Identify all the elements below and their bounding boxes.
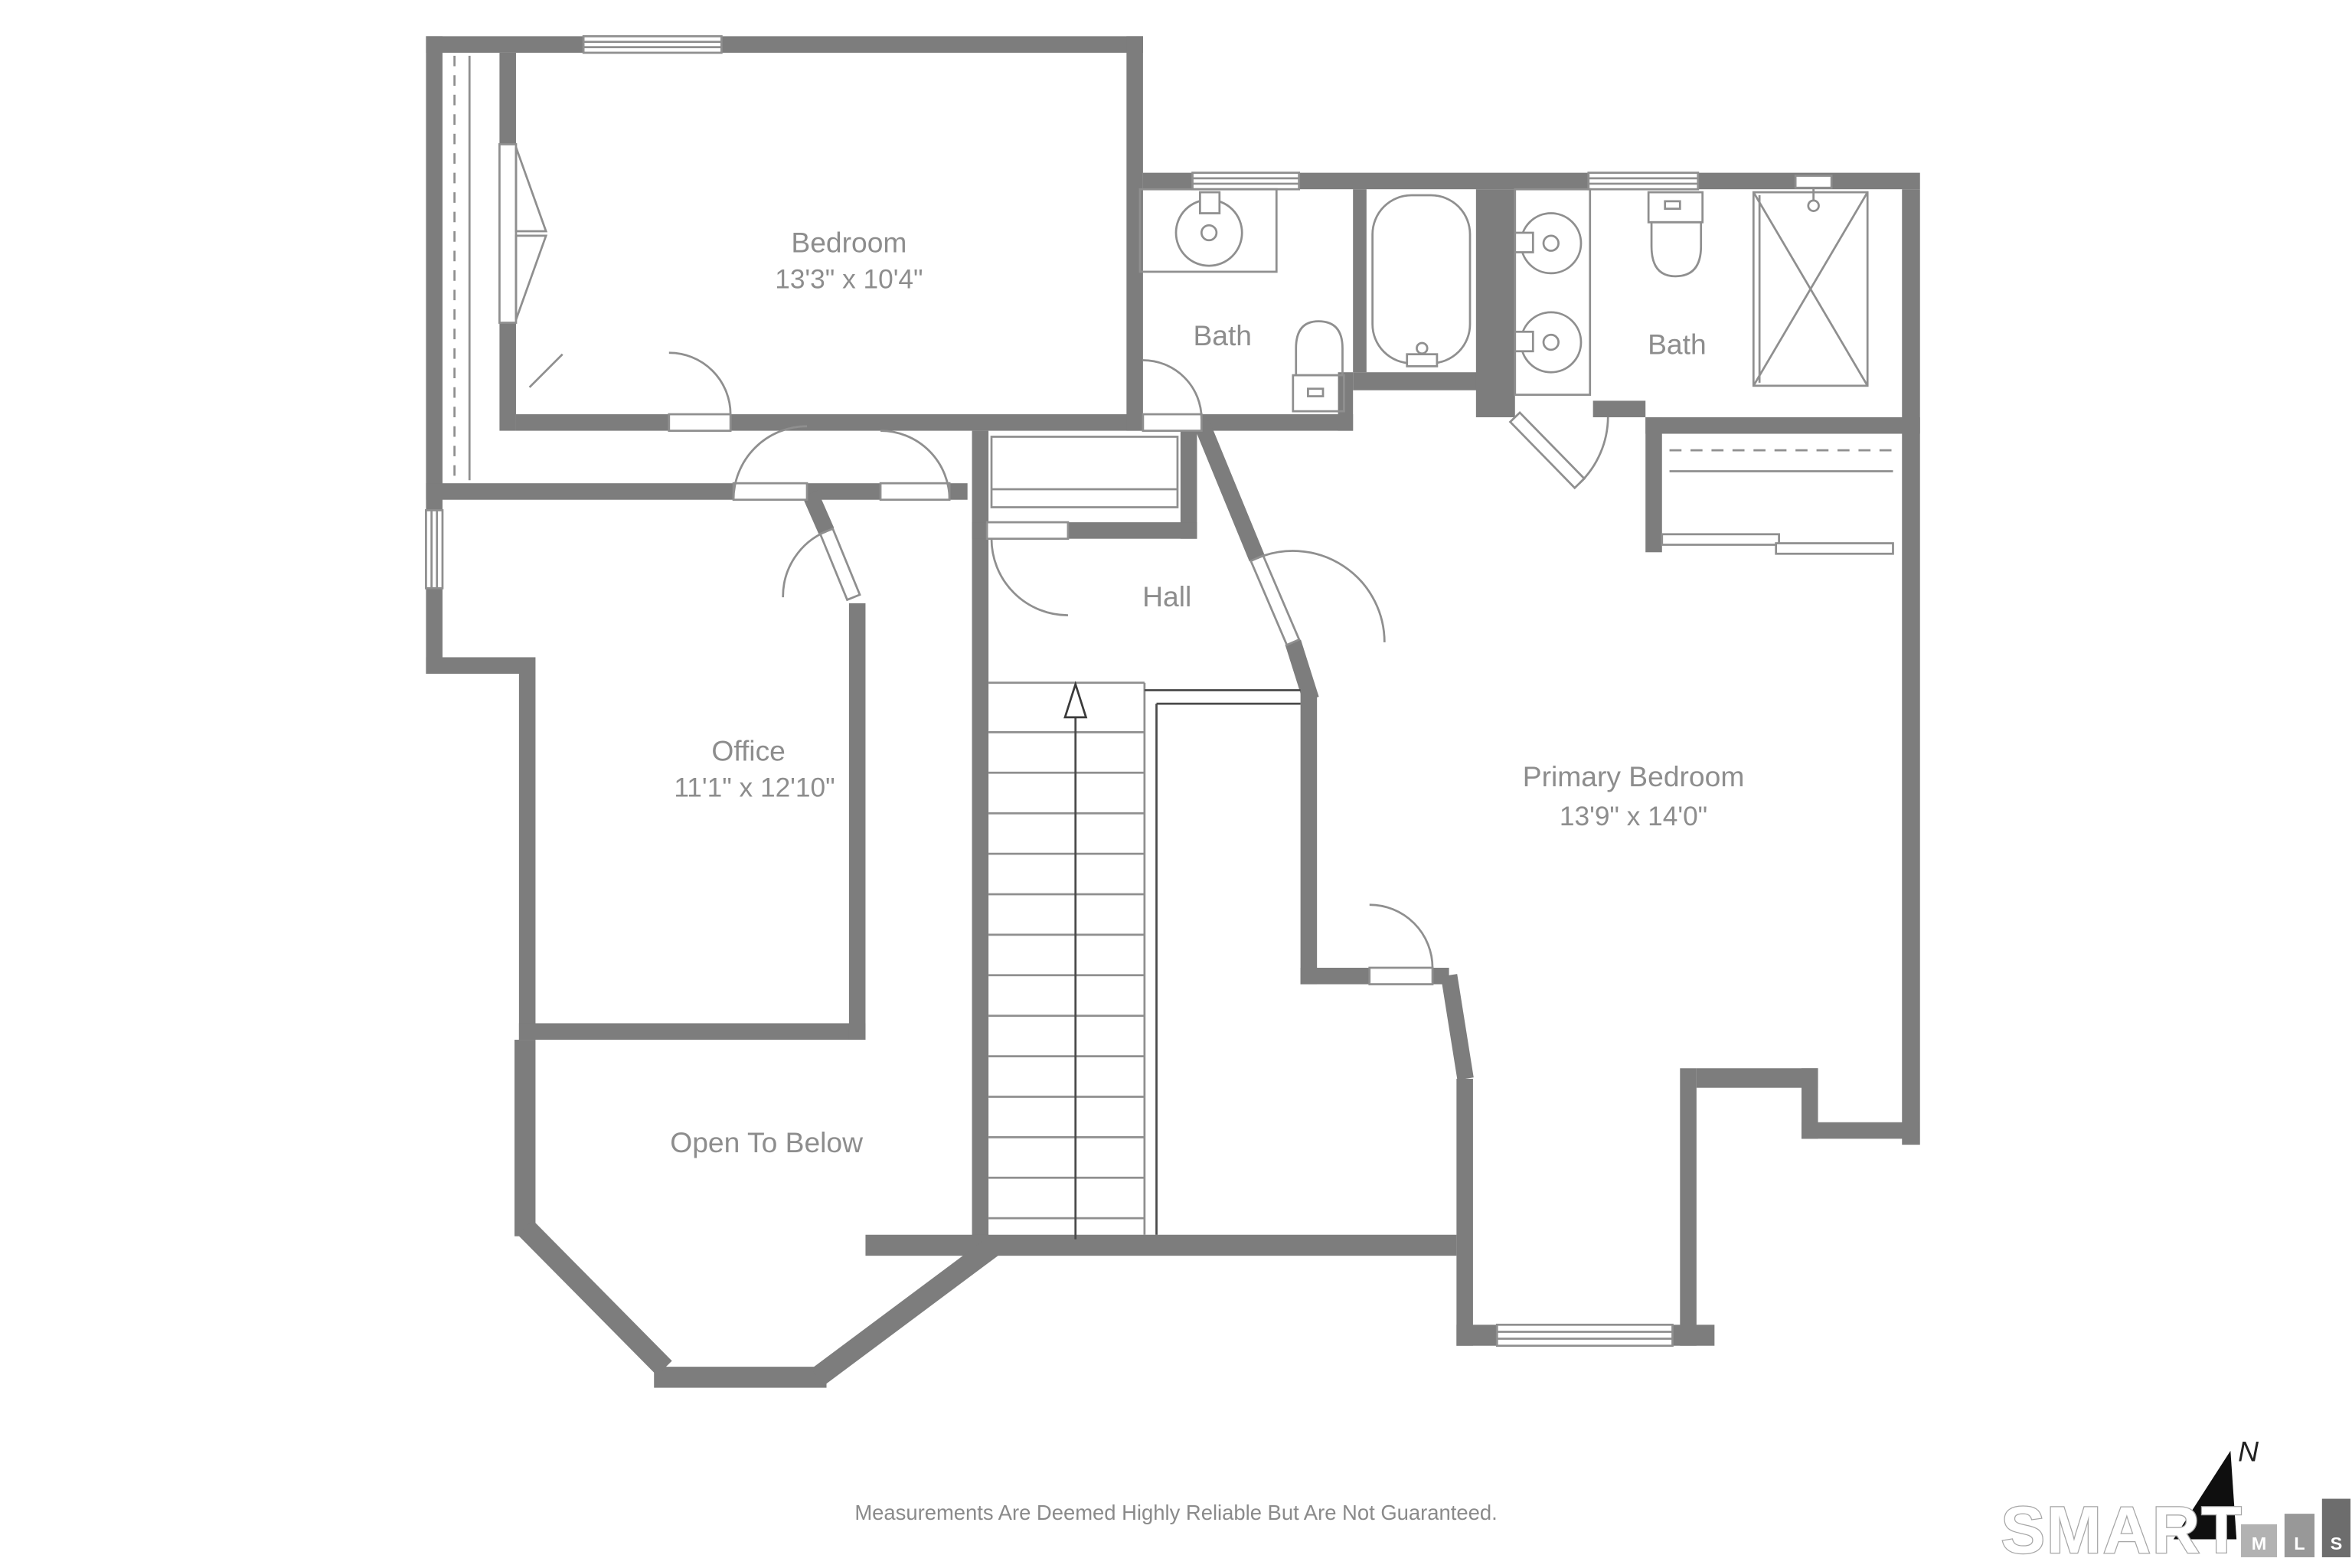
wall-left-jog: [426, 657, 535, 674]
walls: [426, 36, 1919, 1387]
wall-primary-south-b: [1802, 1122, 1919, 1139]
double-sink-vanity-icon: [1515, 189, 1590, 394]
wall-bay-right: [1680, 1068, 1697, 1345]
label-bath-primary: Bath: [1648, 328, 1707, 361]
wall-corridor-west: [1301, 693, 1318, 984]
wall-alcove-jog: [1338, 372, 1354, 430]
wall-stairwell-left: [972, 431, 989, 1256]
wall-office-south: [519, 1023, 866, 1040]
wall-between-baths: [1476, 189, 1515, 417]
logo-letter-m: M: [2252, 1534, 2267, 1553]
label-primary-bedroom: Primary Bedroom: [1523, 760, 1745, 792]
room-labels: Bedroom 13'3" x 10'4" Bath Bath Hall Off…: [670, 226, 1744, 1158]
branding: N SMART M L S: [2001, 1436, 2350, 1568]
sink-vanity-icon: [1140, 189, 1276, 272]
wall-primarycloset-top: [1645, 417, 1920, 434]
bifold-door-icon: [499, 144, 546, 322]
door-primary-main: [1251, 551, 1385, 645]
disclaimer-text: Measurements Are Deemed Highly Reliable …: [854, 1501, 1497, 1524]
bathtub-icon: [1373, 195, 1470, 366]
stair-treads: [988, 732, 1145, 1218]
wall-otb-diag-right: [818, 1245, 995, 1377]
primary-closet: [1662, 450, 1893, 554]
door-corridor: [880, 431, 949, 500]
window-primary-bay: [1497, 1325, 1672, 1345]
label-hall: Hall: [1142, 580, 1191, 612]
hall-closet-shelf: [991, 436, 1178, 507]
label-open-to-below: Open To Below: [670, 1126, 863, 1158]
sliding-door-left: [1662, 534, 1779, 545]
toilet-icon: [1293, 322, 1344, 412]
wall-office-north-3: [949, 483, 968, 500]
door-office-diag: [783, 529, 860, 600]
dims-office: 11'1" x 12'10": [674, 773, 835, 803]
wall-closet-inner-lower: [499, 323, 516, 431]
wall-hall-diag-a: [1201, 423, 1256, 558]
window-bath1: [1193, 173, 1299, 190]
label-bath-middle: Bath: [1193, 319, 1252, 351]
logo-mls-blocks: M L S: [2241, 1499, 2350, 1557]
wall-hallcloset-bottom-1: [972, 522, 988, 539]
stairs-up-arrow-icon: [1065, 684, 1086, 1240]
dims-primary-bedroom: 13'9" x 14'0": [1560, 802, 1707, 831]
label-bedroom: Bedroom: [791, 226, 906, 258]
wall-office-east: [849, 603, 866, 1040]
north-label: N: [2238, 1436, 2259, 1468]
door-bath2: [1511, 413, 1609, 488]
door-bath1: [1143, 361, 1201, 431]
doors: [530, 353, 1609, 985]
window-office-left: [426, 510, 443, 588]
wall-closet-inner-upper: [499, 53, 516, 145]
wall-bedroom-south-1: [516, 414, 669, 431]
toilet-icon: [1648, 192, 1703, 276]
wall-alcove-west: [1353, 189, 1367, 372]
door-bedroom: [669, 353, 730, 431]
wall-primary-door-left: [1301, 968, 1370, 985]
wall-hallcloset-bottom-2: [1068, 522, 1197, 539]
door-swing-line-closet-strip: [530, 354, 563, 387]
logo-letter-s: S: [2331, 1534, 2343, 1553]
wall-diag-to-bay: [1449, 975, 1466, 1079]
dims-bedroom: 13'3" x 10'4": [775, 264, 923, 294]
wall-otb-diag-left: [525, 1227, 665, 1368]
wall-bath1-south: [1201, 414, 1353, 431]
stairs: [988, 683, 1301, 1240]
wall-bedroom-top: [426, 36, 1142, 53]
wall-alcove-south: [1353, 372, 1492, 390]
shower-icon: [1753, 176, 1867, 386]
logo-letter-l: L: [2294, 1534, 2305, 1553]
wall-primarycloset-left: [1645, 417, 1662, 552]
window-bedroom-top: [583, 36, 721, 53]
wall-otb-bottom: [654, 1367, 826, 1387]
bath2-fixtures: [1515, 176, 1867, 395]
door-office: [733, 426, 807, 500]
wall-bath2-south: [1593, 400, 1646, 417]
door-primary-lower: [1370, 905, 1432, 985]
stair-railing: [1145, 691, 1301, 1235]
door-hall-closet: [987, 522, 1068, 615]
logo-smart: SMART: [2001, 1494, 2243, 1567]
wall-under-stairs: [865, 1235, 1456, 1256]
window-bath2: [1589, 173, 1698, 190]
wall-otb-left: [514, 1040, 535, 1236]
floor-plan-page: Bedroom 13'3" x 10'4" Bath Bath Hall Off…: [0, 0, 2352, 1568]
label-office: Office: [711, 735, 786, 767]
sliding-door-right: [1776, 544, 1893, 554]
wall-office-left: [519, 674, 536, 1040]
wall-bay-left: [1456, 1079, 1473, 1346]
wall-primary-south-a: [1697, 1068, 1818, 1087]
wall-right-outer: [1902, 189, 1920, 1145]
wall-office-north-1: [426, 483, 733, 500]
